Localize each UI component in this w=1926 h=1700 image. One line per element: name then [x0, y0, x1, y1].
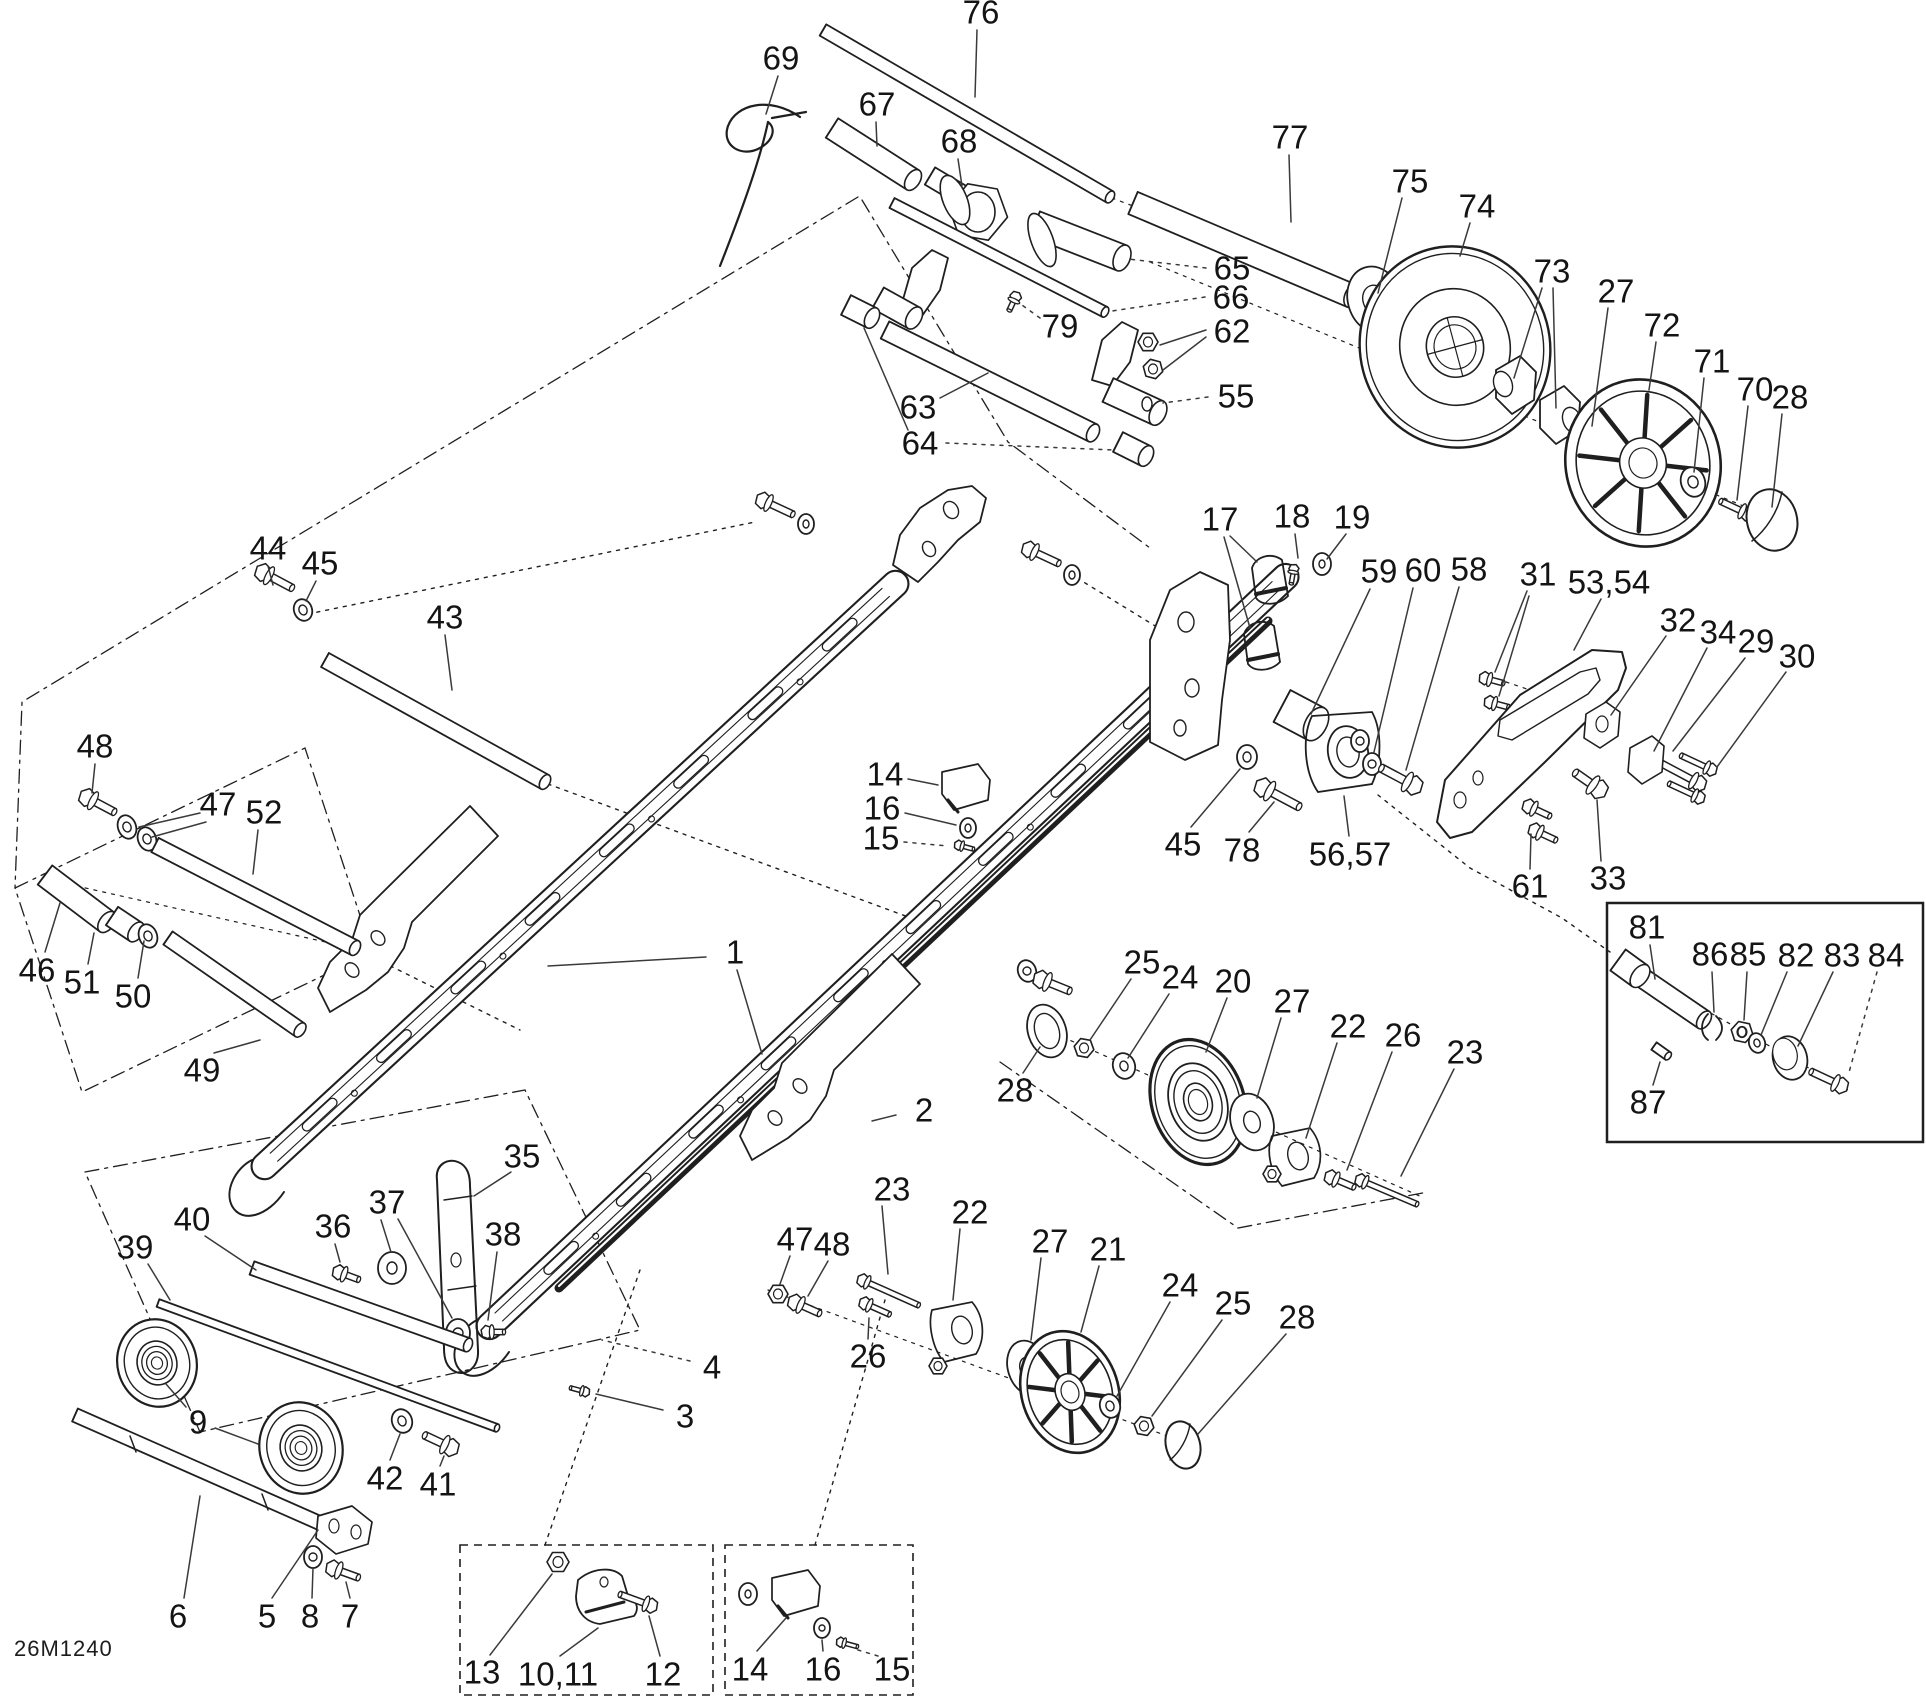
shape-bolt-88 — [1374, 757, 1426, 799]
callout-7: 7 — [341, 1582, 359, 1635]
shape-bolt-156 — [330, 1263, 363, 1288]
callout-label-72: 72 — [1644, 307, 1681, 344]
callout-label-62: 62 — [1214, 313, 1251, 350]
callout-56,57: 56,57 — [1309, 796, 1392, 873]
shape-ring-111 — [291, 597, 315, 624]
callout-79: 79 — [1022, 305, 1078, 345]
shape-bolt-133 — [1322, 1167, 1359, 1195]
callout-label-86: 86 — [1692, 936, 1729, 973]
callout-label-83: 83 — [1824, 937, 1861, 974]
callout-label-39: 39 — [117, 1229, 154, 1266]
callout-label-16: 16 — [805, 1651, 842, 1688]
shape-wheel-162 — [107, 1310, 206, 1416]
shape-tube-120 — [163, 931, 308, 1039]
callout-55: 55 — [1163, 378, 1254, 415]
callout-label-38: 38 — [485, 1216, 522, 1253]
callout-23: 23 — [1401, 1034, 1483, 1177]
shape-hex-188 — [547, 1553, 569, 1572]
callout-87: 87 — [1630, 1062, 1667, 1121]
shape-pl-77 — [1248, 654, 1278, 660]
shape-ring-193 — [739, 1583, 757, 1605]
shape-ring-172 — [304, 1546, 322, 1568]
callout-label-48: 48 — [814, 1226, 851, 1263]
shape-bolt-103 — [1567, 763, 1612, 804]
callout-76: 76 — [963, 0, 1000, 97]
shape-pl-191 — [586, 1602, 624, 1612]
callout-label-2: 2 — [915, 1092, 933, 1129]
parts-diagram-page: 7669676877757473277271702865667962556364… — [0, 0, 1926, 1700]
shape-ell-35 — [1178, 612, 1194, 632]
shape-ell-131 — [1285, 1140, 1312, 1172]
shape-ring-196 — [814, 1618, 830, 1638]
callout-47: 47 — [139, 786, 236, 838]
callout-label-28: 28 — [997, 1072, 1034, 1109]
shape-ell-56 — [1142, 397, 1152, 411]
callout-label-32: 32 — [1660, 602, 1697, 639]
shape-hex-126 — [1074, 1039, 1094, 1058]
callout-21: 21 — [1081, 1231, 1126, 1333]
callout-label-47: 47 — [777, 1221, 814, 1258]
shape-hex-57 — [1138, 333, 1158, 350]
callout-48: 48 — [77, 728, 114, 794]
document-code: 26M1240 — [14, 1636, 113, 1662]
shape-bolt-113 — [75, 785, 120, 822]
shape-ell-142 — [949, 1314, 976, 1346]
callout-25: 25 — [1090, 944, 1160, 1041]
shape-path-49 — [720, 122, 768, 266]
shape-ell-170 — [329, 1519, 339, 1533]
shape-bolt-106 — [1019, 538, 1065, 572]
callout-label-48: 48 — [77, 728, 114, 765]
callout-label-12: 12 — [645, 1656, 682, 1693]
callout-24: 24 — [1117, 1267, 1198, 1397]
callout-label-9: 9 — [189, 1404, 207, 1441]
shape-ell-181 — [1738, 1027, 1746, 1037]
shape-poly-24 — [893, 486, 986, 582]
shape-bolt-192 — [616, 1586, 660, 1615]
shape-ring-87 — [1363, 753, 1381, 775]
callout-label-49: 49 — [184, 1052, 221, 1089]
callout-15: 15 — [858, 1650, 910, 1688]
callout-label-40: 40 — [174, 1201, 211, 1238]
shape-ell-72 — [1740, 484, 1804, 557]
callout-label-45: 45 — [1165, 826, 1202, 863]
callout-label-36: 36 — [315, 1208, 352, 1245]
shape-pl-11 — [308, 522, 755, 614]
callout-label-15: 15 — [863, 820, 900, 857]
callout-label-43: 43 — [427, 599, 464, 636]
shape-hex-143 — [929, 1358, 947, 1374]
callout-label-66: 66 — [1213, 279, 1250, 316]
callout-label-44: 44 — [250, 530, 287, 567]
callout-label-79: 79 — [1042, 308, 1079, 345]
callout-41: 41 — [420, 1456, 457, 1503]
callout-label-23: 23 — [874, 1171, 911, 1208]
callout-label-14: 14 — [867, 756, 904, 793]
callout-27: 27 — [1257, 983, 1310, 1099]
callout-47: 47 — [777, 1221, 814, 1285]
callout-label-27: 27 — [1274, 983, 1311, 1020]
callout-label-24: 24 — [1162, 1267, 1199, 1304]
shape-tube-112 — [321, 653, 553, 791]
callout-27: 27 — [1031, 1223, 1068, 1341]
callout-26: 26 — [850, 1318, 887, 1375]
callout-label-81: 81 — [1629, 909, 1666, 946]
shape-pl-152 — [444, 1196, 472, 1200]
callout-label-63: 63 — [900, 389, 937, 426]
shape-bolt-136 — [1030, 967, 1075, 1001]
callout-53,54: 53,54 — [1568, 564, 1651, 651]
callout-label-75: 75 — [1392, 163, 1429, 200]
callout-label-61: 61 — [1512, 868, 1549, 905]
callout-48: 48 — [808, 1226, 850, 1297]
callout-59: 59 — [1311, 553, 1397, 715]
callout-12: 12 — [645, 1616, 682, 1693]
shape-tube-61 — [1113, 432, 1157, 469]
shape-pl-8 — [1378, 795, 1610, 952]
shape-bolt-134 — [1353, 1171, 1422, 1211]
callout-label-28: 28 — [1279, 1299, 1316, 1336]
callout-label-20: 20 — [1215, 963, 1252, 1000]
callout-label-87: 87 — [1630, 1084, 1667, 1121]
callout-label-35: 35 — [504, 1138, 541, 1175]
callout-label-8: 8 — [301, 1598, 319, 1635]
callout-66: 66 — [1112, 279, 1249, 316]
callout-72: 72 — [1644, 307, 1681, 391]
callout-label-28: 28 — [1772, 379, 1809, 416]
shape-hex-137 — [768, 1285, 788, 1302]
callout-46: 46 — [19, 903, 60, 989]
callout-74: 74 — [1459, 188, 1496, 257]
callout-6: 6 — [169, 1496, 200, 1635]
callout-label-22: 22 — [1330, 1008, 1367, 1045]
callout-label-46: 46 — [19, 952, 56, 989]
callout-39: 39 — [117, 1229, 170, 1301]
shape-ell-155 — [451, 1253, 461, 1267]
callout-4: 4 — [602, 1340, 721, 1386]
callout-label-67: 67 — [859, 86, 896, 123]
callout-label-18: 18 — [1274, 498, 1311, 535]
callout-label-7: 7 — [341, 1598, 359, 1635]
callout-label-25: 25 — [1215, 1285, 1252, 1322]
callout-86: 86 — [1692, 936, 1729, 1013]
callout-label-21: 21 — [1090, 1231, 1127, 1268]
callout-label-47: 47 — [200, 786, 237, 823]
shape-tube-82 — [1274, 690, 1334, 745]
callout-label-24: 24 — [1162, 959, 1199, 996]
shape-bolt-165 — [419, 1425, 463, 1459]
callout-52: 52 — [246, 794, 283, 875]
callout-36: 36 — [315, 1208, 352, 1263]
callout-40: 40 — [174, 1201, 256, 1271]
callout-2: 2 — [872, 1092, 933, 1129]
callout-label-56,57: 56,57 — [1309, 836, 1392, 873]
shape-ell-36 — [1185, 679, 1199, 697]
shape-path-179 — [1716, 1016, 1722, 1040]
callout-label-52: 52 — [246, 794, 283, 831]
callout-label-51: 51 — [64, 964, 101, 1001]
shape-bolt-108 — [753, 489, 799, 523]
callout-label-50: 50 — [115, 978, 152, 1015]
callout-label-68: 68 — [941, 123, 978, 160]
callout-label-10,11: 10,11 — [518, 1656, 598, 1693]
callout-61: 61 — [1512, 834, 1549, 905]
callout-15: 15 — [863, 820, 948, 857]
shape-bolt-59 — [1003, 289, 1024, 314]
callout-22: 22 — [952, 1194, 989, 1301]
callout-82: 82 — [1761, 937, 1814, 1036]
shape-tube-40 — [826, 118, 925, 193]
shape-tube-177 — [1651, 1042, 1672, 1061]
shape-wheel-163 — [249, 1393, 353, 1503]
shape-wheel-69 — [1547, 362, 1740, 564]
callout-label-70: 70 — [1737, 371, 1774, 408]
callout-25: 25 — [1152, 1285, 1251, 1417]
callout-label-6: 6 — [169, 1598, 187, 1635]
shape-ring-123 — [960, 818, 976, 838]
callout-85: 85 — [1730, 936, 1767, 1021]
shape-bolt-140 — [857, 1294, 894, 1321]
shape-ell-96 — [1473, 771, 1483, 785]
callout-label-74: 74 — [1459, 188, 1496, 225]
shape-poly-34 — [1150, 572, 1230, 760]
callout-label-59: 59 — [1361, 553, 1398, 590]
callout-51: 51 — [64, 933, 101, 1001]
callout-label-45: 45 — [302, 545, 339, 582]
shape-ell-171 — [351, 1525, 361, 1539]
callout-label-58: 58 — [1451, 551, 1488, 588]
callout-label-4: 4 — [703, 1349, 721, 1386]
callout-50: 50 — [115, 941, 152, 1015]
shape-bolt-138 — [785, 1291, 825, 1322]
callout-18: 18 — [1274, 498, 1311, 559]
diagram-canvas: 7669676877757473277271702865667962556364… — [0, 0, 1926, 1700]
shape-pl-153 — [448, 1286, 476, 1290]
shape-hex-132 — [1263, 1166, 1281, 1182]
callout-label-33: 33 — [1590, 860, 1627, 897]
callout-label-30: 30 — [1779, 638, 1816, 675]
shape-bolt-173 — [323, 1557, 363, 1586]
callout-35: 35 — [474, 1138, 540, 1197]
shape-ring-107 — [1064, 565, 1080, 585]
callout-49: 49 — [184, 1040, 260, 1089]
callout-label-71: 71 — [1694, 343, 1731, 380]
callout-label-22: 22 — [952, 1194, 989, 1231]
shape-ell-95 — [1454, 792, 1466, 808]
shape-ring-157 — [378, 1252, 406, 1284]
shape-ring-86 — [1351, 730, 1369, 752]
callout-62: 62 — [1160, 313, 1250, 371]
callout-label-26: 26 — [1385, 1017, 1422, 1054]
shape-ring-127 — [1110, 1050, 1139, 1082]
callout-19: 19 — [1327, 499, 1370, 560]
shape-pl-0 — [15, 197, 858, 888]
shape-poly-54 — [1092, 322, 1138, 386]
callout-label-23: 23 — [1447, 1034, 1484, 1071]
shape-ring-80 — [1237, 745, 1257, 769]
callout-label-29: 29 — [1738, 623, 1775, 660]
shape-ell-190 — [600, 1577, 608, 1587]
callout-28: 28 — [997, 1047, 1040, 1109]
shape-ring-125 — [1021, 999, 1074, 1062]
shape-bolt-150 — [568, 1382, 591, 1398]
callout-69: 69 — [763, 40, 800, 115]
callout-label-26: 26 — [850, 1338, 887, 1375]
callout-31: 31 — [1495, 556, 1556, 697]
shape-ring-114 — [114, 813, 139, 842]
callout-label-53,54: 53,54 — [1568, 564, 1651, 601]
callout-78: 78 — [1224, 802, 1274, 869]
callout-label-64: 64 — [902, 425, 939, 462]
shape-ell-37 — [1174, 720, 1186, 736]
callout-23: 23 — [874, 1171, 911, 1275]
callout-43: 43 — [427, 599, 464, 691]
callout-label-1: 1 — [726, 934, 744, 971]
callout-label-19: 19 — [1334, 499, 1371, 536]
callout-16: 16 — [805, 1640, 842, 1688]
shape-hex-58 — [1143, 359, 1162, 378]
callout-label-3: 3 — [676, 1398, 694, 1435]
callout-8: 8 — [301, 1568, 319, 1635]
callout-label-31: 31 — [1520, 556, 1557, 593]
callout-45: 45 — [302, 545, 339, 602]
shape-ell-98 — [1596, 716, 1608, 732]
callout-14: 14 — [732, 1618, 786, 1688]
callout-70: 70 — [1737, 371, 1774, 501]
callout-3: 3 — [596, 1394, 694, 1435]
callout-label-82: 82 — [1778, 937, 1815, 974]
shape-hex-147 — [1134, 1417, 1154, 1436]
callout-label-84: 84 — [1868, 937, 1905, 974]
callout-label-69: 69 — [763, 40, 800, 77]
callout-22: 22 — [1306, 1008, 1366, 1139]
callout-label-13: 13 — [464, 1654, 501, 1691]
shape-poly-169 — [316, 1506, 372, 1554]
callout-label-5: 5 — [258, 1598, 276, 1635]
callout-77: 77 — [1272, 119, 1309, 223]
callout-28: 28 — [1772, 379, 1809, 508]
callout-42: 42 — [367, 1434, 404, 1497]
callout-label-77: 77 — [1272, 119, 1309, 156]
shape-pl-18 — [1112, 198, 1133, 206]
shape-ring-164 — [388, 1406, 415, 1435]
callout-label-73: 73 — [1534, 253, 1571, 290]
callout-label-76: 76 — [963, 0, 1000, 31]
callout-label-25: 25 — [1124, 944, 1161, 981]
callout-label-42: 42 — [367, 1460, 404, 1497]
callout-label-78: 78 — [1224, 832, 1261, 869]
callout-label-55: 55 — [1218, 378, 1255, 415]
shape-pl-6 — [545, 1270, 640, 1545]
shape-ring-109 — [798, 514, 814, 534]
callout-label-85: 85 — [1730, 936, 1767, 973]
callout-10,11: 10,11 — [518, 1628, 598, 1693]
shape-bolt-81 — [1250, 774, 1306, 817]
shape-tube-55 — [1103, 378, 1171, 428]
callout-label-37: 37 — [369, 1184, 406, 1221]
callout-label-34: 34 — [1700, 614, 1737, 651]
shape-bolt-104 — [1520, 796, 1555, 824]
callout-label-41: 41 — [420, 1466, 457, 1503]
callout-14: 14 — [867, 756, 938, 793]
callout-1: 1 — [548, 934, 762, 1055]
shape-bolt-185 — [1806, 1063, 1852, 1097]
callout-20: 20 — [1206, 963, 1251, 1053]
callout-label-17: 17 — [1202, 501, 1239, 538]
callout-33: 33 — [1590, 800, 1627, 897]
callout-label-27: 27 — [1598, 273, 1635, 310]
callout-label-14: 14 — [732, 1651, 769, 1688]
callout-label-60: 60 — [1405, 552, 1442, 589]
callout-label-15: 15 — [874, 1651, 911, 1688]
callout-label-27: 27 — [1032, 1223, 1069, 1260]
